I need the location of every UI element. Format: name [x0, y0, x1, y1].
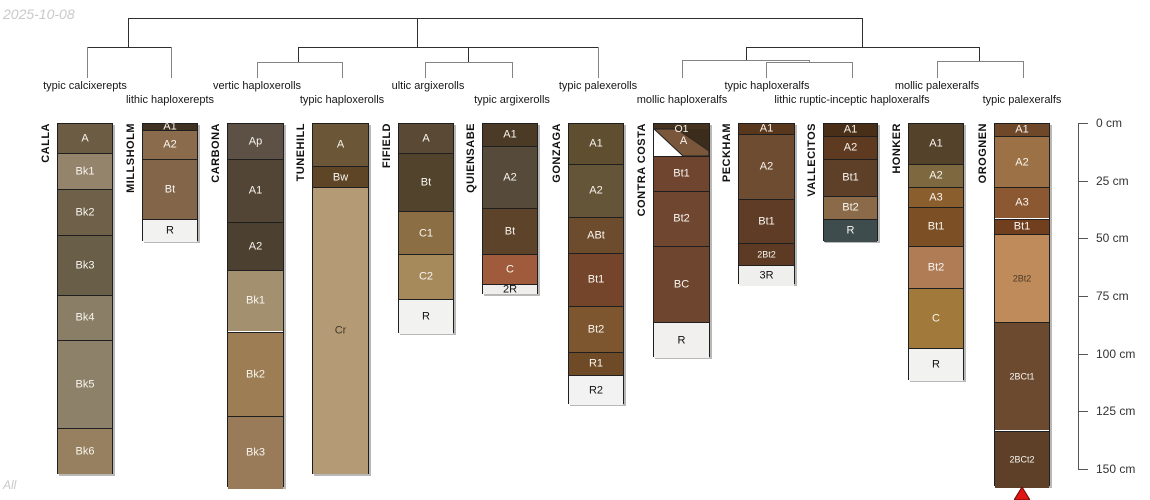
horizon: Bk5 [58, 340, 112, 429]
depth-tick-label: 0 cm [1096, 116, 1122, 130]
dendrogram-segment [128, 18, 863, 19]
taxon-label: vertic haploxerolls [213, 80, 301, 92]
horizon: Bk3 [58, 235, 112, 295]
profile-column: A1A2Bt12Bt23R [738, 123, 795, 284]
horizon-label: BC [654, 279, 709, 290]
dendrogram-segment [128, 18, 129, 48]
horizon-label: A2 [824, 143, 877, 154]
horizon: A [313, 124, 368, 166]
horizon: A1 [483, 124, 537, 146]
taxon-label: typic palexeralfs [983, 94, 1062, 106]
profile-name-label: CALLA [40, 123, 52, 163]
horizon-label: Bt1 [909, 222, 963, 233]
dendrogram-segment [766, 62, 853, 63]
horizon-label: Bk2 [58, 207, 112, 218]
horizon-label: A1 [739, 124, 794, 135]
dendrogram-segment [746, 47, 747, 61]
profile-column: A1A2BtC2R [482, 123, 538, 294]
dendrogram-segment [298, 47, 599, 48]
profile-column: ApA1A2Bk1Bk2Bk3 [227, 123, 284, 487]
horizon-label: Bk2 [228, 369, 283, 380]
horizon: R [399, 299, 453, 334]
dendrogram-segment [979, 47, 980, 62]
horizon: Bk6 [58, 428, 112, 474]
horizon: 2BCt2 [995, 431, 1049, 488]
horizon-label: Bt1 [654, 169, 709, 180]
profile-name-label: TUNEHILL [295, 123, 307, 181]
pointer-triangle-icon [1014, 487, 1030, 500]
depth-axis-tick [1078, 123, 1088, 124]
horizon-label: C1 [399, 228, 453, 239]
horizon: 3R [739, 265, 794, 286]
horizon: 2BCt1 [995, 322, 1049, 430]
dendrogram-segment [746, 47, 980, 48]
horizon-label: A2 [483, 172, 537, 183]
horizon-label: Bt1 [995, 222, 1049, 233]
horizon: Bk1 [228, 270, 283, 331]
horizon: Bt [399, 153, 453, 211]
depth-axis-tick [1078, 238, 1088, 239]
profile-column: A1A2Bt1Bt2R [823, 123, 878, 241]
horizon: Bt1 [654, 156, 709, 191]
taxon-label: mollic palexeralfs [895, 80, 979, 92]
horizon-label: Bt2 [654, 214, 709, 225]
dendrogram-segment [342, 62, 343, 78]
depth-axis-tick [1078, 181, 1088, 182]
horizon: A2 [483, 146, 537, 208]
horizon: A2 [569, 164, 623, 217]
horizon-label: Bk1 [58, 166, 112, 177]
profile-column: A1A2A3Bt12Bt22BCt12BCt2 [994, 123, 1050, 486]
horizon: A1 [995, 124, 1049, 136]
horizon-label: R [909, 360, 963, 371]
profile-column: A1A2BtR [142, 123, 198, 241]
depth-tick-label: 150 cm [1096, 462, 1135, 476]
horizon-label: Bt2 [909, 262, 963, 273]
horizon: A [58, 124, 112, 153]
horizon: Cr [313, 187, 368, 474]
horizon-label: 2BCt1 [995, 372, 1049, 381]
horizon-label: 2BCt2 [995, 456, 1049, 465]
dendrogram-segment [852, 62, 853, 78]
horizon-label: A [399, 133, 453, 144]
taxon-label: typic haploxerolls [300, 94, 384, 106]
profile-name-label: GONZAGA [551, 123, 563, 183]
taxon-label: ultic argixerolls [392, 80, 465, 92]
horizon: Bk2 [228, 332, 283, 416]
profile-column: ABwCr [312, 123, 369, 474]
profile-column: ABk1Bk2Bk3Bk4Bk5Bk6 [57, 123, 113, 474]
horizon: Bt1 [739, 199, 794, 243]
depth-tick-label: 125 cm [1096, 404, 1135, 418]
dendrogram-segment [298, 47, 299, 63]
horizon-label: Bt [399, 177, 453, 188]
taxon-label: typic argixerolls [474, 94, 550, 106]
dendrogram-segment [417, 18, 418, 48]
dendrogram-segment [87, 47, 172, 48]
horizon-label: Bt2 [824, 203, 877, 214]
dendrogram-segment [862, 18, 863, 48]
horizon: BC [654, 246, 709, 322]
profile-name-label: CONTRA COSTA [636, 123, 648, 216]
watermark-date: 2025-10-08 [3, 6, 75, 22]
horizon-label: 2Bt2 [995, 275, 1049, 284]
dendrogram-segment [425, 62, 513, 63]
dendrogram-segment [682, 60, 810, 61]
depth-axis-tick [1078, 469, 1088, 470]
horizon-label: Bk3 [58, 260, 112, 271]
horizon: A2 [143, 130, 197, 159]
horizon-label: A2 [569, 186, 623, 197]
horizon-label: Bt1 [739, 216, 794, 227]
profile-name-label: MILLSHOLM [125, 123, 137, 193]
horizon: A1 [228, 159, 283, 222]
horizon-label: Bt1 [824, 173, 877, 184]
profile-name-label: QUIENSABE [465, 123, 477, 193]
profile-column: A1A2ABtBt1Bt2R1R2 [568, 123, 624, 404]
horizon-label: A2 [909, 171, 963, 182]
diagonal-horizon-graphic: O1A [654, 124, 709, 156]
horizon-label: Bk1 [228, 296, 283, 307]
horizon: Ap [228, 124, 283, 159]
dendrogram-segment [257, 62, 343, 63]
horizon: Bt2 [654, 191, 709, 246]
horizon: Bt [143, 159, 197, 219]
horizon-label: Bk5 [58, 380, 112, 391]
horizon-label: A [313, 140, 368, 151]
horizon-label: C [909, 313, 963, 324]
horizon: R2 [569, 375, 623, 405]
horizon-label: Bt [143, 184, 197, 195]
taxon-label: typic calcixerepts [43, 80, 127, 92]
horizon-label: Bk6 [58, 446, 112, 457]
horizon-label: Bt1 [569, 275, 623, 286]
dendrogram-segment [766, 62, 767, 78]
depth-tick-label: 75 cm [1096, 289, 1129, 303]
horizon: 2R [483, 284, 537, 294]
depth-axis-tick [1078, 411, 1088, 412]
dendrogram-segment [937, 61, 938, 78]
horizon: Bk1 [58, 153, 112, 189]
horizon-label: A2 [228, 241, 283, 252]
horizon: 2Bt2 [995, 234, 1049, 323]
horizon: Bt1 [995, 219, 1049, 234]
horizon-label: A1 [483, 130, 537, 141]
horizon: Bt1 [569, 253, 623, 306]
horizon-label: Ap [228, 136, 283, 147]
horizon: A2 [824, 136, 877, 159]
horizon: R1 [569, 352, 623, 375]
horizon: Bt2 [824, 196, 877, 219]
horizon: R [143, 219, 197, 242]
horizon-label: Bk4 [58, 313, 112, 324]
horizon-label: 2Bt2 [739, 250, 794, 259]
horizon: Bt1 [909, 207, 963, 246]
horizon: Bt1 [824, 159, 877, 196]
horizon: Bw [313, 166, 368, 188]
taxon-label: typic haploxeralfs [725, 80, 810, 92]
horizon-label: A1 [909, 139, 963, 150]
watermark-page: All [3, 478, 16, 492]
taxon-label: typic palexerolls [559, 80, 637, 92]
taxon-label: lithic haploxerepts [126, 94, 214, 106]
horizon: Bt2 [909, 246, 963, 288]
horizon-label: A2 [739, 162, 794, 173]
horizon: A3 [995, 187, 1049, 218]
horizon-label: A [58, 133, 112, 144]
dendrogram-segment [171, 47, 172, 78]
horizon-label-o1: O1 [674, 124, 688, 135]
dendrogram-segment [937, 61, 1024, 62]
horizon: C1 [399, 211, 453, 255]
horizon: C [483, 254, 537, 284]
horizon: A1 [569, 124, 623, 164]
horizon: A1 [739, 124, 794, 134]
profile-name-label: OROGNEN [977, 123, 989, 183]
horizon-label: A3 [909, 192, 963, 203]
horizon-label: Bt2 [569, 324, 623, 335]
horizon-label: Bk3 [228, 448, 283, 459]
horizon: R [909, 348, 963, 381]
horizon-label: 2R [483, 284, 537, 295]
horizon: Bk3 [228, 416, 283, 489]
horizon: A2 [995, 136, 1049, 188]
dendrogram-segment [87, 47, 88, 78]
horizon-label: Bt [483, 226, 537, 237]
horizon-label: Bw [313, 172, 368, 183]
dendrogram-segment [598, 47, 599, 78]
horizon: A1 [824, 124, 877, 136]
dendrogram-segment [512, 62, 513, 78]
horizon-label: ABt [569, 230, 623, 241]
profile-name-label: VALLECITOS [806, 123, 818, 197]
horizon-label: A2 [143, 140, 197, 151]
horizon-label: R2 [569, 385, 623, 396]
horizon: A1 [909, 124, 963, 164]
depth-axis-tick [1078, 354, 1088, 355]
horizon: Bt [483, 208, 537, 254]
horizon: R [654, 322, 709, 358]
horizon-label-a: A [680, 135, 688, 147]
dendrogram-segment [468, 47, 469, 63]
horizon-label: R [143, 226, 197, 237]
horizon: A2 [228, 222, 283, 270]
profile-name-label: PECKHAM [721, 123, 733, 182]
depth-axis-tick [1078, 296, 1088, 297]
horizon: Bt2 [569, 306, 623, 352]
profile-name-label: CARBONA [210, 123, 222, 183]
depth-tick-label: 100 cm [1096, 347, 1135, 361]
taxon-label: lithic ruptic-inceptic haploxeralfs [774, 94, 929, 106]
horizon: Bk2 [58, 189, 112, 235]
horizon: ABt [569, 217, 623, 253]
profile-name-label: FIFIELD [381, 123, 393, 168]
profile-name-label: HONKER [891, 123, 903, 174]
horizon-label: R [399, 312, 453, 323]
horizon: A [399, 124, 453, 153]
dendrogram-segment [1023, 61, 1024, 78]
horizon-label: A2 [995, 157, 1049, 168]
horizon: A2 [909, 164, 963, 187]
horizon-label: R [654, 335, 709, 346]
horizon-label: A1 [995, 125, 1049, 136]
horizon-label: Cr [313, 326, 368, 337]
profile-column: O1ABt1Bt2BCR [653, 123, 710, 357]
horizon: A3 [909, 187, 963, 207]
dendrogram-segment [425, 62, 426, 78]
horizon-label: 3R [739, 271, 794, 282]
horizon-label: C2 [399, 272, 453, 283]
horizon: A2 [739, 134, 794, 199]
horizon: C2 [399, 254, 453, 299]
depth-tick-label: 50 cm [1096, 231, 1129, 245]
horizon: O1A [654, 124, 709, 156]
horizon-label: R1 [569, 359, 623, 370]
profile-column: ABtC1C2R [398, 123, 454, 333]
dendrogram-segment [682, 60, 683, 78]
horizon-label: A1 [228, 186, 283, 197]
horizon: Bk4 [58, 295, 112, 340]
horizon: C [909, 288, 963, 348]
dendrogram-segment [257, 62, 258, 78]
horizon-label: C [483, 264, 537, 275]
depth-tick-label: 25 cm [1096, 174, 1129, 188]
horizon: 2Bt2 [739, 243, 794, 265]
horizon-label: R [824, 226, 877, 237]
horizon-label: A3 [995, 198, 1049, 209]
horizon: R [824, 219, 877, 242]
horizon-label: A1 [824, 125, 877, 136]
horizon-label: A1 [569, 139, 623, 150]
profile-column: A1A2A3Bt1Bt2CR [908, 123, 964, 380]
taxon-label: mollic haploxeralfs [637, 94, 727, 106]
soil-profile-chart: 2025-10-08 All typic calcixereptslithic … [0, 0, 1150, 500]
